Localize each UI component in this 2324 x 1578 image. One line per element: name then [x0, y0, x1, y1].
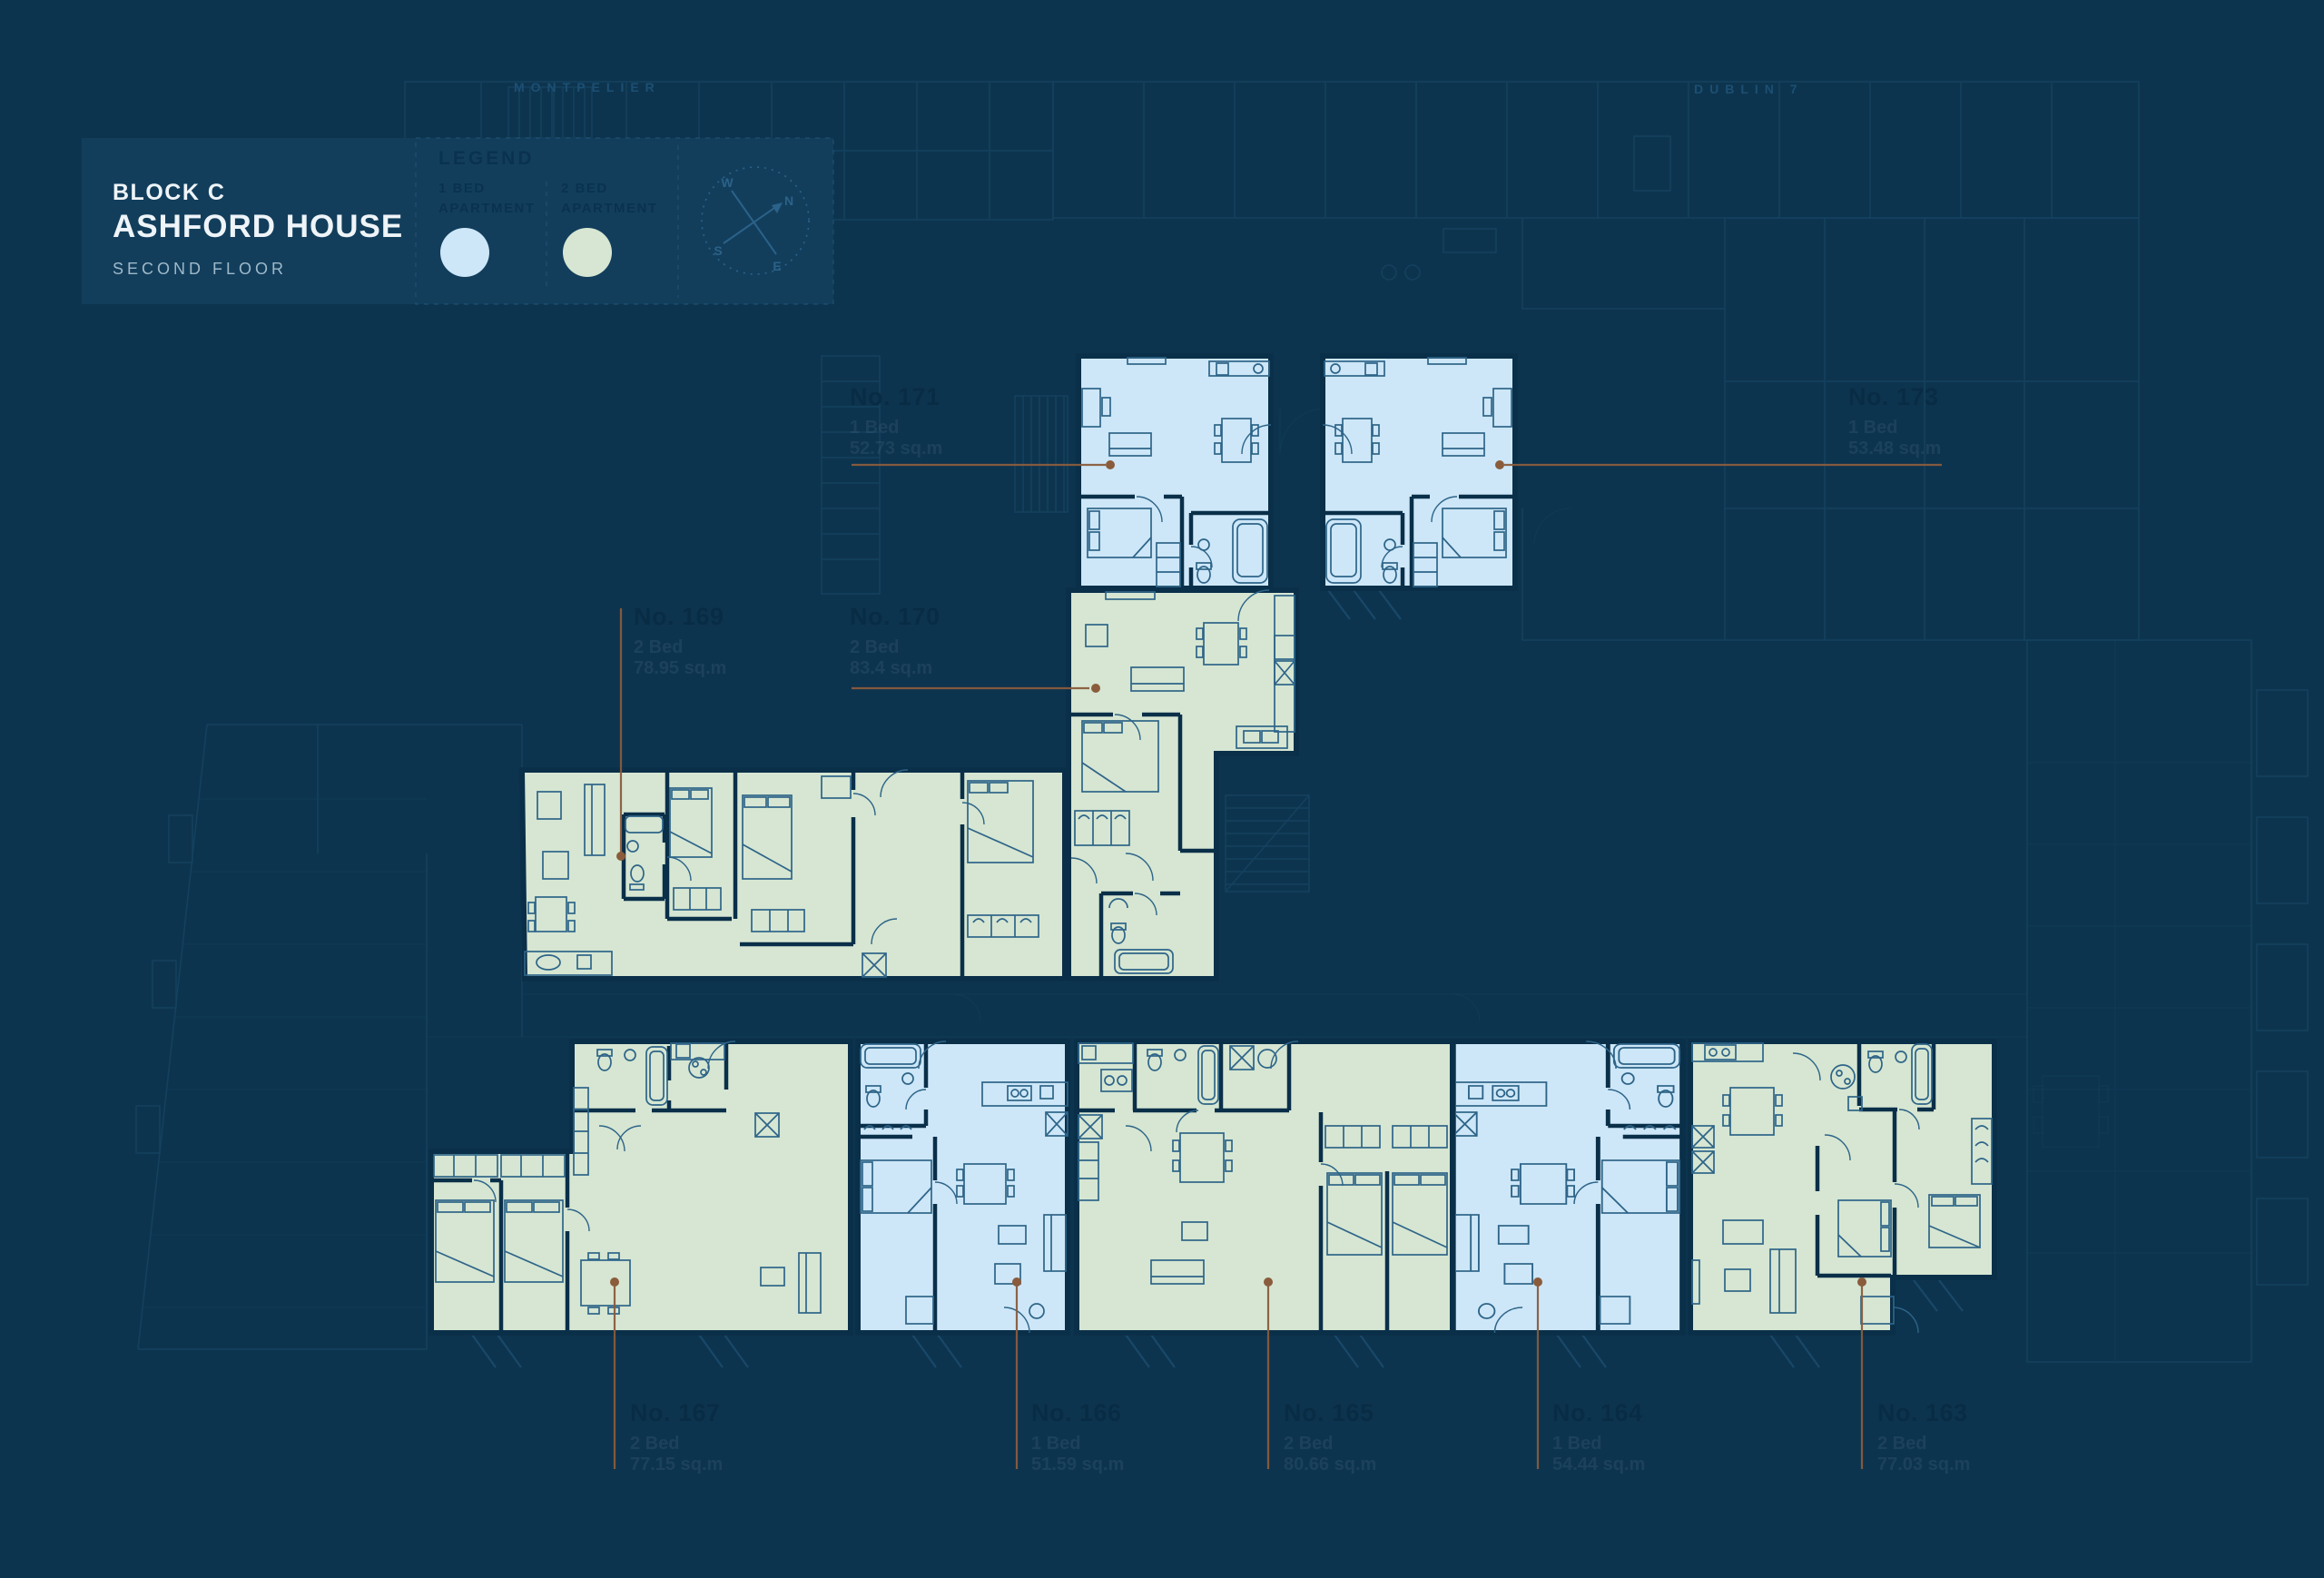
building-name: ASHFORD HOUSE: [113, 209, 403, 245]
legend-1bed-swatch: [440, 228, 489, 277]
block-title: BLOCK C: [113, 180, 403, 206]
apartment-171-shape[interactable]: [1078, 356, 1271, 588]
apartment-details: 2 Bed 83.4 sq.m: [850, 637, 940, 679]
apartment-area: 77.15 sq.m: [630, 1455, 723, 1475]
apartment-area: 53.48 sq.m: [1848, 439, 1941, 459]
apartment-label-166: No. 166 1 Bed 51.59 sq.m: [1031, 1399, 1124, 1475]
compass-s: S: [714, 243, 722, 258]
apartment-164-shape[interactable]: [1452, 1041, 1682, 1333]
apartment-label-169: No. 169 2 Bed 78.95 sq.m: [634, 603, 726, 679]
apartment-details: 1 Bed 53.48 sq.m: [1848, 418, 1941, 459]
apartment-167-shape[interactable]: [431, 1041, 851, 1333]
apartment-details: 2 Bed 77.03 sq.m: [1877, 1434, 1970, 1475]
title-block: BLOCK C ASHFORD HOUSE SECOND FLOOR: [113, 180, 403, 279]
apartment-details: 1 Bed 51.59 sq.m: [1031, 1434, 1124, 1475]
apartment-label-165: No. 165 2 Bed 80.66 sq.m: [1284, 1399, 1376, 1475]
apartment-beds: 1 Bed: [1552, 1434, 1645, 1455]
legend-2bed-line1: 2 BED: [561, 179, 658, 199]
apartment-area: 77.03 sq.m: [1877, 1455, 1970, 1475]
apartment-beds: 1 Bed: [1031, 1434, 1124, 1455]
legend-item-2bed: 2 BED APARTMENT: [561, 179, 658, 219]
context-label-montpelier: MONTPELIER: [514, 80, 661, 94]
apartment-area: 78.95 sq.m: [634, 658, 726, 679]
apartment-details: 2 Bed 77.15 sq.m: [630, 1434, 723, 1475]
compass-w: W: [721, 175, 734, 190]
context-label-dublin: DUBLIN 7: [1694, 82, 1804, 96]
apartment-number: No. 170: [850, 603, 940, 631]
apartment-beds: 2 Bed: [634, 637, 726, 658]
apartment-number: No. 164: [1552, 1399, 1645, 1427]
apartment-number: No. 163: [1877, 1399, 1970, 1427]
apartment-number: No. 165: [1284, 1399, 1376, 1427]
legend-2bed-swatch: [563, 228, 612, 277]
apartment-number: No. 167: [630, 1399, 723, 1427]
apartment-area: 51.59 sq.m: [1031, 1455, 1124, 1475]
apartment-label-164: No. 164 1 Bed 54.44 sq.m: [1552, 1399, 1645, 1475]
apartment-details: 2 Bed 80.66 sq.m: [1284, 1434, 1376, 1475]
apartment-area: 52.73 sq.m: [850, 439, 942, 459]
legend-item-1bed: 1 BED APARTMENT: [438, 179, 536, 219]
apartment-169-shape[interactable]: [522, 770, 1065, 979]
apartment-beds: 2 Bed: [850, 637, 940, 658]
apartment-details: 1 Bed 52.73 sq.m: [850, 418, 942, 459]
floorplan-page: W N S E BLOCK C ASHFORD HOUSE SECOND FLO…: [0, 0, 2324, 1578]
apartment-details: 1 Bed 54.44 sq.m: [1552, 1434, 1645, 1475]
apartment-165-shape[interactable]: [1077, 1041, 1452, 1333]
compass-n: N: [784, 193, 793, 208]
apartment-163-shape[interactable]: [1690, 1041, 1994, 1333]
apartment-number: No. 169: [634, 603, 726, 631]
apartment-beds: 2 Bed: [1877, 1434, 1970, 1455]
legend-1bed-line2: APARTMENT: [438, 199, 536, 219]
apartment-label-171: No. 171 1 Bed 52.73 sq.m: [850, 383, 942, 459]
legend-2bed-line2: APARTMENT: [561, 199, 658, 219]
apartment-label-163: No. 163 2 Bed 77.03 sq.m: [1877, 1399, 1970, 1475]
apartment-170-shape[interactable]: [1068, 590, 1296, 979]
apartment-details: 2 Bed 78.95 sq.m: [634, 637, 726, 679]
apartment-area: 80.66 sq.m: [1284, 1455, 1376, 1475]
apartment-number: No. 166: [1031, 1399, 1124, 1427]
apartment-beds: 2 Bed: [630, 1434, 723, 1455]
apartment-beds: 2 Bed: [1284, 1434, 1376, 1455]
apartment-label-167: No. 167 2 Bed 77.15 sq.m: [630, 1399, 723, 1475]
apartment-label-173: No. 173 1 Bed 53.48 sq.m: [1848, 383, 1941, 459]
apartment-area: 54.44 sq.m: [1552, 1455, 1645, 1475]
apartment-beds: 1 Bed: [1848, 418, 1941, 439]
apartment-beds: 1 Bed: [850, 418, 942, 439]
apartment-number: No. 171: [850, 383, 942, 411]
apartment-label-170: No. 170 2 Bed 83.4 sq.m: [850, 603, 940, 679]
floor-name: SECOND FLOOR: [113, 260, 403, 279]
apartment-166-shape[interactable]: [858, 1041, 1068, 1333]
apartment-number: No. 173: [1848, 383, 1941, 411]
legend-1bed-line1: 1 BED: [438, 179, 536, 199]
apartment-area: 83.4 sq.m: [850, 658, 940, 679]
legend-heading: LEGEND: [438, 148, 535, 170]
apartment-173-shape[interactable]: [1323, 356, 1515, 588]
compass-e: E: [773, 259, 781, 273]
